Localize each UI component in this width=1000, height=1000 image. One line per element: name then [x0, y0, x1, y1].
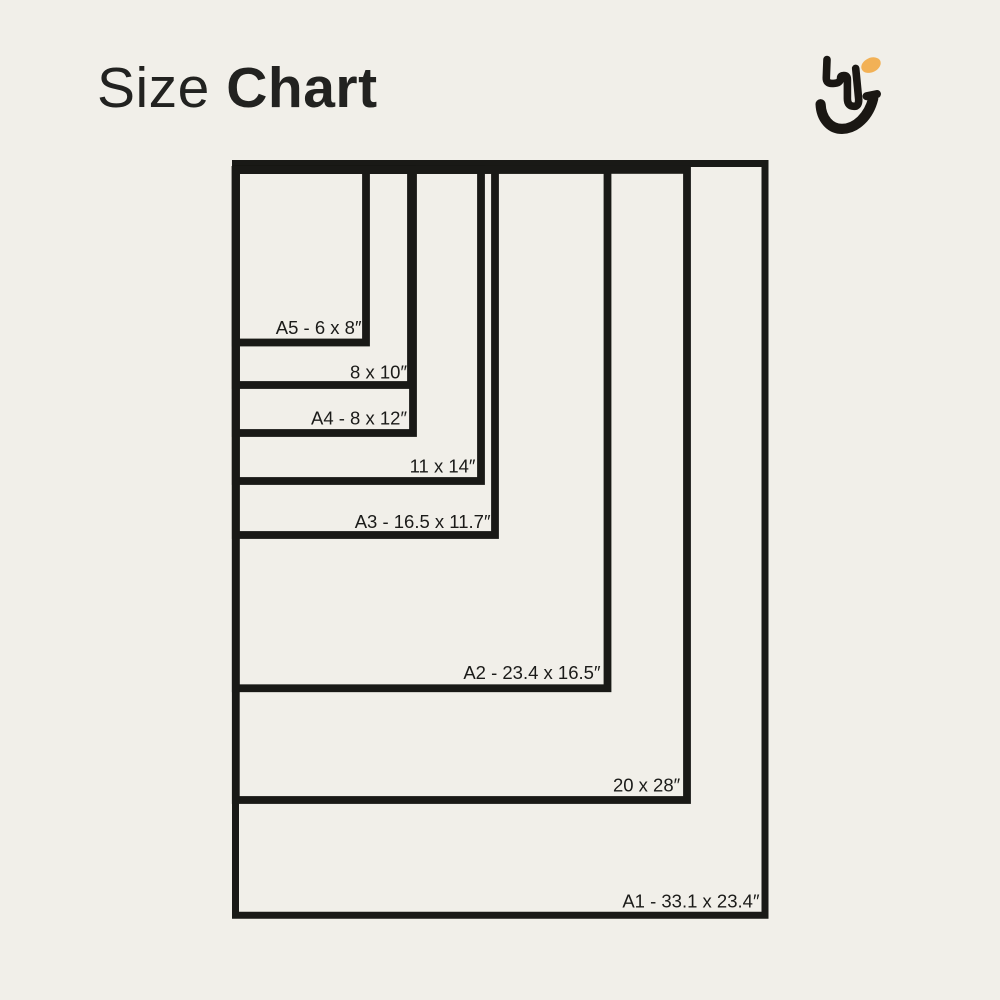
- svg-text:Size Chart: Size Chart: [97, 56, 378, 120]
- svg-text:A4 - 8 x 12″: A4 - 8 x 12″: [311, 408, 407, 429]
- svg-text:A3 - 16.5 x 11.7″: A3 - 16.5 x 11.7″: [355, 511, 491, 532]
- svg-text:A1 - 33.1 x 23.4″: A1 - 33.1 x 23.4″: [622, 890, 760, 911]
- svg-text:A2 - 23.4 x 16.5″: A2 - 23.4 x 16.5″: [463, 662, 601, 683]
- svg-text:A5 - 6 x 8″: A5 - 6 x 8″: [276, 317, 362, 338]
- svg-text:11 x 14″: 11 x 14″: [410, 455, 476, 476]
- svg-text:8 x 10″: 8 x 10″: [350, 362, 407, 383]
- svg-text:20 x 28″: 20 x 28″: [613, 774, 681, 795]
